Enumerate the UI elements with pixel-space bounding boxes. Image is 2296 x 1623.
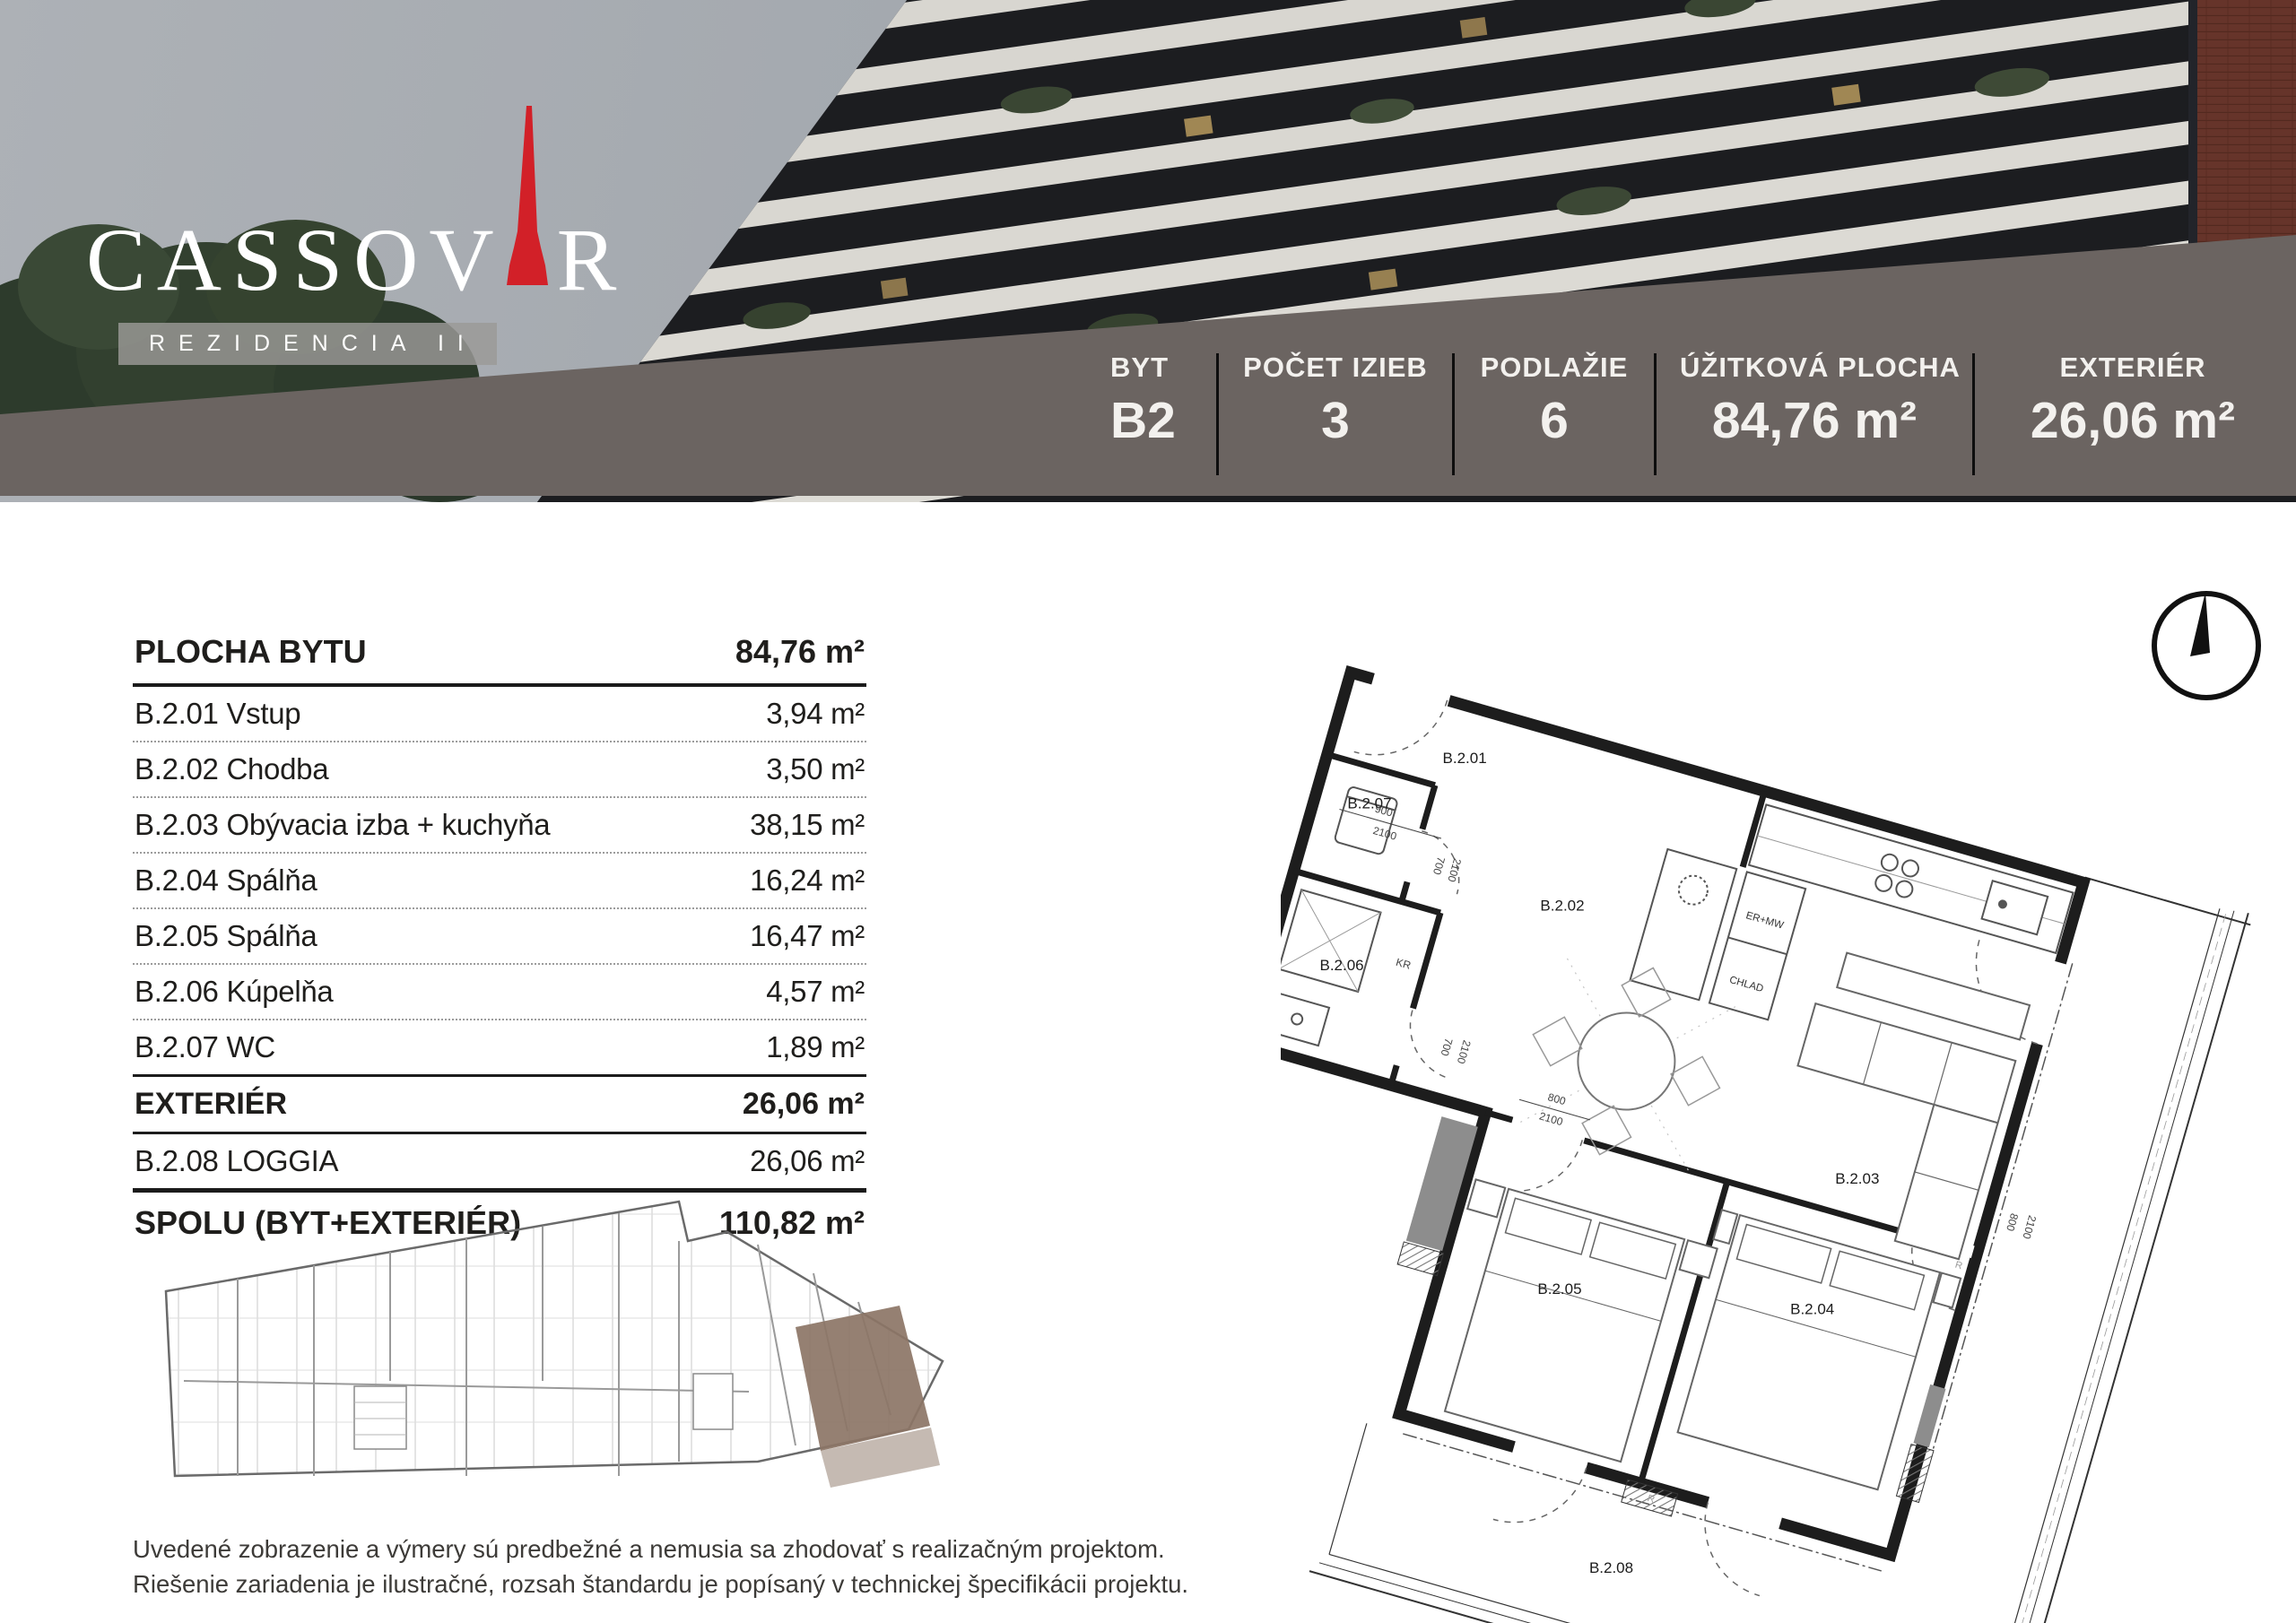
table-row: B.2.06 Kúpelňa 4,57 m² <box>133 965 866 1020</box>
table-row: B.2.05 Spálňa 16,47 m² <box>133 909 866 965</box>
stat-label: BYT <box>1110 352 1193 384</box>
stat-label: ÚŽITKOVÁ PLOCHA <box>1680 352 1949 384</box>
brand-tagline: REZIDENCIA II <box>118 323 497 365</box>
unit-stats: BYT B2 POČET IZIEB 3 PODLAŽIE 6 ÚŽITKOVÁ… <box>1110 352 2267 475</box>
stat-rooms: POČET IZIEB 3 <box>1242 352 1429 450</box>
building-edge <box>2188 0 2197 269</box>
floor-overview-plan <box>130 1191 948 1500</box>
dim-text: 800 <box>2004 1211 2021 1232</box>
table-row: B.2.01 Vstup 3,94 m² <box>133 687 866 742</box>
apartment-floor-plan: ER+MW CHLAD <box>1281 572 2296 1623</box>
stat-byt: BYT B2 <box>1110 352 1193 450</box>
room-area: 26,06 m² <box>750 1144 865 1178</box>
stat-value: 26,06 m² <box>1998 391 2267 450</box>
tower-icon <box>507 106 548 291</box>
compass-icon <box>2154 592 2258 698</box>
stat-divider <box>1452 353 1455 475</box>
disclaimer: Uvedené zobrazenie a výmery sú predbežné… <box>133 1532 1188 1601</box>
brand-name-left: CASSOV <box>86 215 505 305</box>
table-row: B.2.04 Spálňa 16,24 m² <box>133 854 866 909</box>
brand-name: CASSOV R <box>86 106 627 305</box>
room-area: 3,50 m² <box>766 752 865 786</box>
room-area: 38,15 m² <box>750 808 865 842</box>
stat-divider <box>1654 353 1657 475</box>
stat-floor: PODLAŽIE 6 <box>1478 352 1631 450</box>
brand-logo: CASSOV R REZIDENCIA II <box>86 106 627 365</box>
room-area: 1,89 m² <box>766 1030 865 1064</box>
table-row: B.2.02 Chodba 3,50 m² <box>133 742 866 798</box>
exterior-value: 26,06 m² <box>743 1087 865 1122</box>
room-label: B.2.05 <box>1537 1280 1581 1298</box>
disclaimer-line1: Uvedené zobrazenie a výmery sú predbežné… <box>133 1532 1188 1567</box>
room-area: 3,94 m² <box>766 697 865 731</box>
room-area: 16,47 m² <box>750 919 865 953</box>
brick-wall <box>2197 0 2296 269</box>
room-label: B.2.06 <box>1319 957 1363 974</box>
header: BYT B2 POČET IZIEB 3 PODLAŽIE 6 ÚŽITKOVÁ… <box>0 0 2296 502</box>
room-area: 4,57 m² <box>766 975 865 1009</box>
stat-divider <box>1972 353 1975 475</box>
stat-label: PODLAŽIE <box>1478 352 1631 384</box>
stat-divider <box>1216 353 1219 475</box>
table-row: B.2.07 WC 1,89 m² <box>133 1020 866 1074</box>
stat-value: 84,76 m² <box>1680 391 1949 450</box>
room-name: B.2.02 Chodba <box>135 752 328 786</box>
room-label: B.2.02 <box>1540 897 1584 914</box>
exterior-label: EXTERIÉR <box>135 1087 287 1122</box>
dim-text: 2100 <box>2020 1214 2039 1241</box>
disclaimer-line2: Riešenie zariadenia je ilustračné, rozsa… <box>133 1567 1188 1601</box>
stair-core <box>693 1374 733 1429</box>
stat-label: POČET IZIEB <box>1242 352 1429 384</box>
stair-core <box>354 1386 406 1449</box>
room-label: B.2.04 <box>1790 1301 1834 1318</box>
table-header: PLOCHA BYTU 84,76 m² <box>133 628 866 687</box>
stat-exterior: EXTERIÉR 26,06 m² <box>1998 352 2267 450</box>
area-table: PLOCHA BYTU 84,76 m² B.2.01 Vstup 3,94 m… <box>133 628 866 1247</box>
table-exterior-row: EXTERIÉR 26,06 m² <box>133 1074 866 1134</box>
brand-name-right: R <box>557 215 628 305</box>
room-label: B.2.08 <box>1589 1559 1633 1576</box>
stat-label: EXTERIÉR <box>1998 352 2267 384</box>
room-name: B.2.07 WC <box>135 1030 275 1064</box>
stat-value: 6 <box>1478 391 1631 450</box>
room-name: B.2.04 Spálňa <box>135 864 317 898</box>
room-name: B.2.01 Vstup <box>135 697 300 731</box>
room-name: B.2.06 Kúpelňa <box>135 975 333 1009</box>
table-row: B.2.03 Obývacia izba + kuchyňa 38,15 m² <box>133 798 866 854</box>
table-header-value: 84,76 m² <box>735 633 865 671</box>
room-name: B.2.03 Obývacia izba + kuchyňa <box>135 808 550 842</box>
room-name: B.2.08 LOGGIA <box>135 1144 338 1178</box>
room-label: B.2.03 <box>1835 1170 1879 1187</box>
stat-usable-area: ÚŽITKOVÁ PLOCHA 84,76 m² <box>1680 352 1949 450</box>
room-area: 16,24 m² <box>750 864 865 898</box>
stat-value: 3 <box>1242 391 1429 450</box>
plan-drawing: ER+MW CHLAD <box>1281 657 2254 1623</box>
stat-value: B2 <box>1110 391 1193 450</box>
table-header-label: PLOCHA BYTU <box>135 633 367 671</box>
table-row: B.2.08 LOGGIA 26,06 m² <box>133 1134 866 1188</box>
room-label: B.2.01 <box>1443 750 1487 767</box>
room-name: B.2.05 Spálňa <box>135 919 317 953</box>
